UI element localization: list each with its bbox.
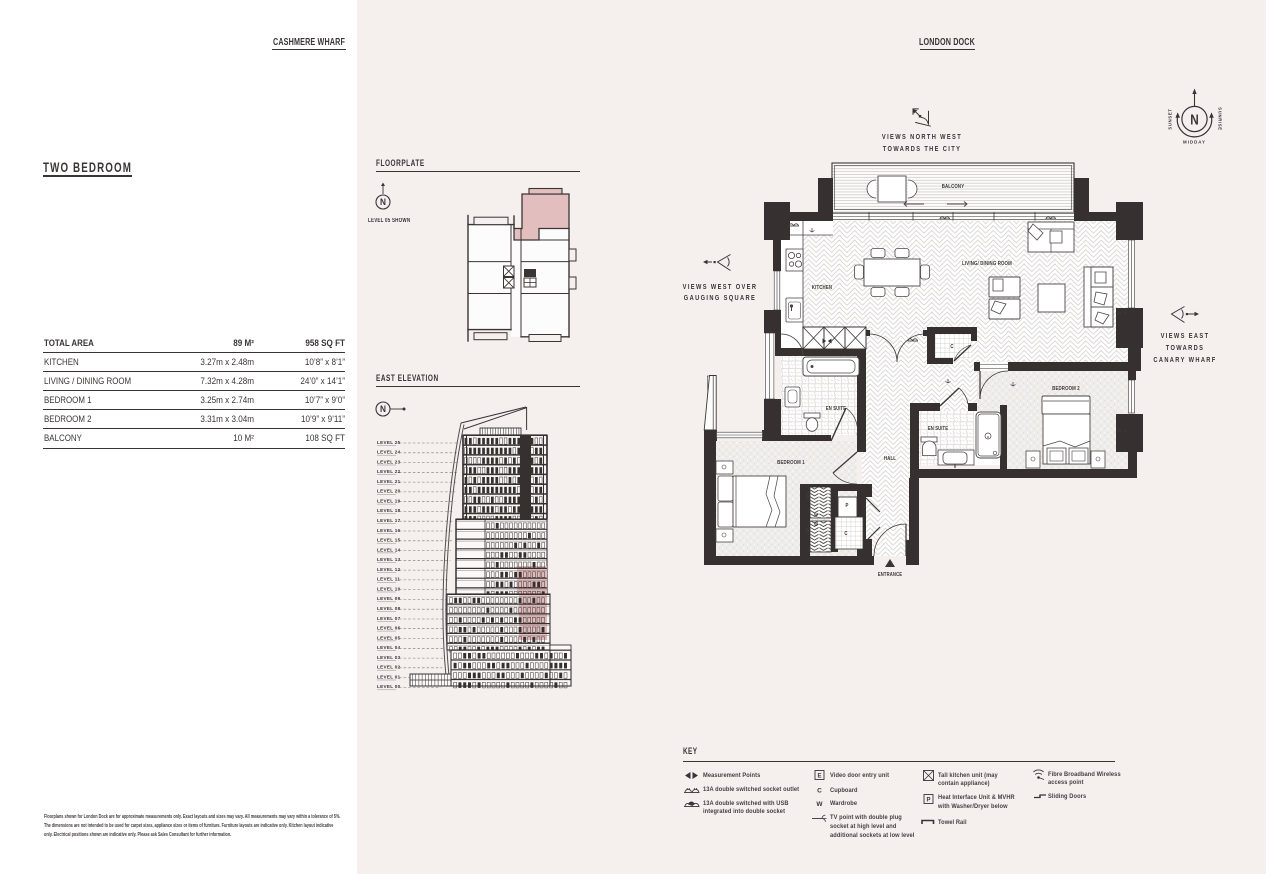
svg-text:LEVEL 20: LEVEL 20 [377, 489, 401, 494]
svg-text:LEVEL 13: LEVEL 13 [377, 557, 401, 562]
svg-text:LEVEL 21: LEVEL 21 [377, 479, 401, 484]
svg-text:LEVEL 07: LEVEL 07 [377, 616, 401, 621]
svg-text:LEVEL 18: LEVEL 18 [377, 508, 401, 513]
svg-text:MIDDAY: MIDDAY [1183, 140, 1206, 145]
svg-text:LEVEL 22: LEVEL 22 [377, 469, 401, 474]
svg-text:LEVEL 15: LEVEL 15 [377, 538, 401, 543]
svg-text:SUNRISE: SUNRISE [1218, 107, 1223, 131]
svg-text:LEVEL 01: LEVEL 01 [377, 674, 401, 679]
svg-text:LEVEL 10: LEVEL 10 [377, 586, 401, 591]
svg-text:P: P [926, 798, 930, 804]
svg-text:LEVEL 23: LEVEL 23 [377, 459, 401, 464]
svg-text:LEVEL 02: LEVEL 02 [377, 665, 401, 670]
svg-text:LEVEL 08: LEVEL 08 [377, 606, 401, 611]
svg-text:LEVEL 03: LEVEL 03 [377, 655, 401, 660]
svg-text:N: N [380, 404, 386, 415]
svg-text:LEVEL 00: LEVEL 00 [377, 684, 401, 689]
svg-text:LEVEL 09: LEVEL 09 [377, 596, 401, 601]
svg-text:LEVEL 17: LEVEL 17 [377, 518, 401, 523]
svg-text:LEVEL 14: LEVEL 14 [377, 547, 401, 552]
svg-text:SUNSET: SUNSET [1168, 108, 1173, 129]
svg-text:LEVEL 06: LEVEL 06 [377, 626, 401, 631]
svg-text:E: E [817, 774, 821, 780]
svg-text:LEVEL 05: LEVEL 05 [377, 635, 401, 640]
svg-text:LEVEL 16: LEVEL 16 [377, 528, 401, 533]
svg-text:LEVEL 12: LEVEL 12 [377, 567, 401, 572]
svg-text:LEVEL 25: LEVEL 25 [377, 440, 401, 445]
svg-text:LEVEL 19: LEVEL 19 [377, 499, 401, 504]
svg-text:LEVEL 24: LEVEL 24 [377, 450, 401, 455]
svg-text:N: N [380, 197, 386, 208]
svg-text:LEVEL 11: LEVEL 11 [377, 577, 400, 582]
svg-text:W: W [816, 801, 823, 808]
svg-text:C: C [817, 787, 822, 794]
svg-text:LEVEL 04: LEVEL 04 [377, 645, 401, 650]
svg-text:N: N [1190, 111, 1199, 128]
